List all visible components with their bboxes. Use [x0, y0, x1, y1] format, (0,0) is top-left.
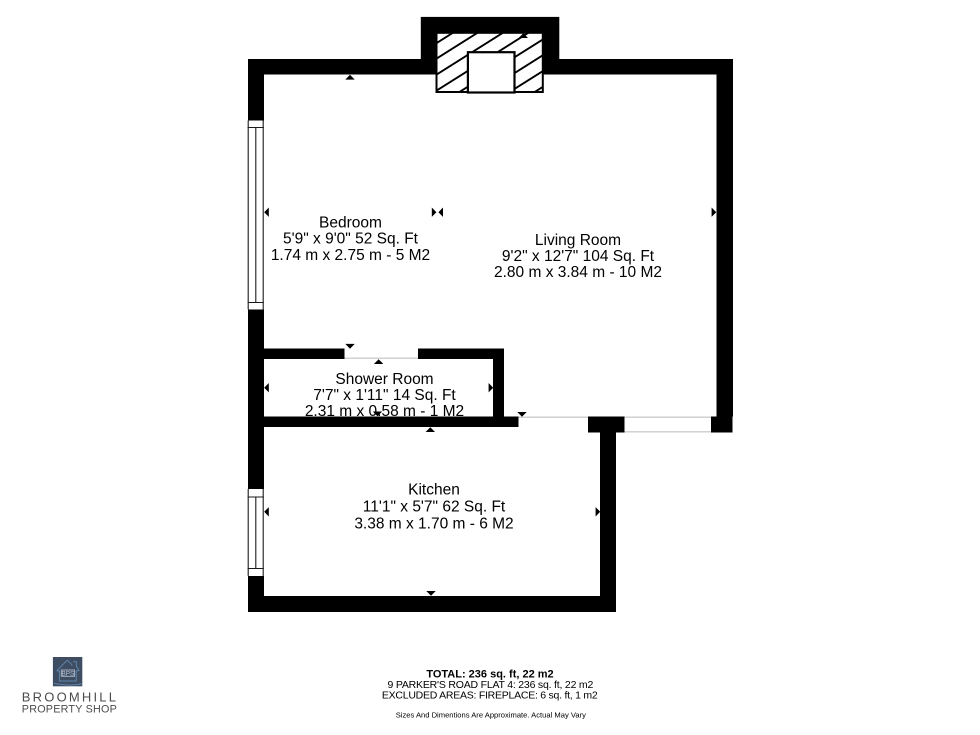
svg-text:9'2" x 12'7" 104 Sq. Ft: 9'2" x 12'7" 104 Sq. Ft [502, 248, 655, 265]
svg-text:1.74 m x 2.75 m - 5 M2: 1.74 m x 2.75 m - 5 M2 [271, 247, 430, 264]
svg-text:2.31 m x 0.58 m - 1 M2: 2.31 m x 0.58 m - 1 M2 [305, 403, 464, 420]
svg-text:Bedroom: Bedroom [319, 214, 382, 231]
svg-text:3.38 m x 1.70 m - 6 M2: 3.38 m x 1.70 m - 6 M2 [354, 515, 513, 532]
svg-text:Shower Room: Shower Room [335, 371, 433, 388]
svg-text:2.80 m x 3.84 m - 10 M2: 2.80 m x 3.84 m - 10 M2 [494, 264, 662, 281]
svg-text:EXCLUDED AREAS: FIREPLACE: 6 s: EXCLUDED AREAS: FIREPLACE: 6 sq. ft, 1 m… [382, 689, 598, 701]
svg-text:BPS: BPS [62, 671, 75, 678]
svg-text:11'1" x 5'7" 62 Sq. Ft: 11'1" x 5'7" 62 Sq. Ft [363, 499, 506, 516]
svg-text:Kitchen: Kitchen [408, 482, 460, 499]
svg-text:7'7" x 1'11" 14 Sq. Ft: 7'7" x 1'11" 14 Sq. Ft [313, 387, 456, 404]
svg-text:5'9" x 9'0" 52 Sq. Ft: 5'9" x 9'0" 52 Sq. Ft [283, 230, 419, 247]
svg-text:BROOMHILL: BROOMHILL [22, 690, 118, 705]
svg-text:PROPERTY SHOP: PROPERTY SHOP [22, 704, 117, 716]
svg-text:Sizes And Dimentions Are Appro: Sizes And Dimentions Are Approximate. Ac… [396, 710, 586, 719]
svg-text:Living Room: Living Room [535, 232, 621, 249]
